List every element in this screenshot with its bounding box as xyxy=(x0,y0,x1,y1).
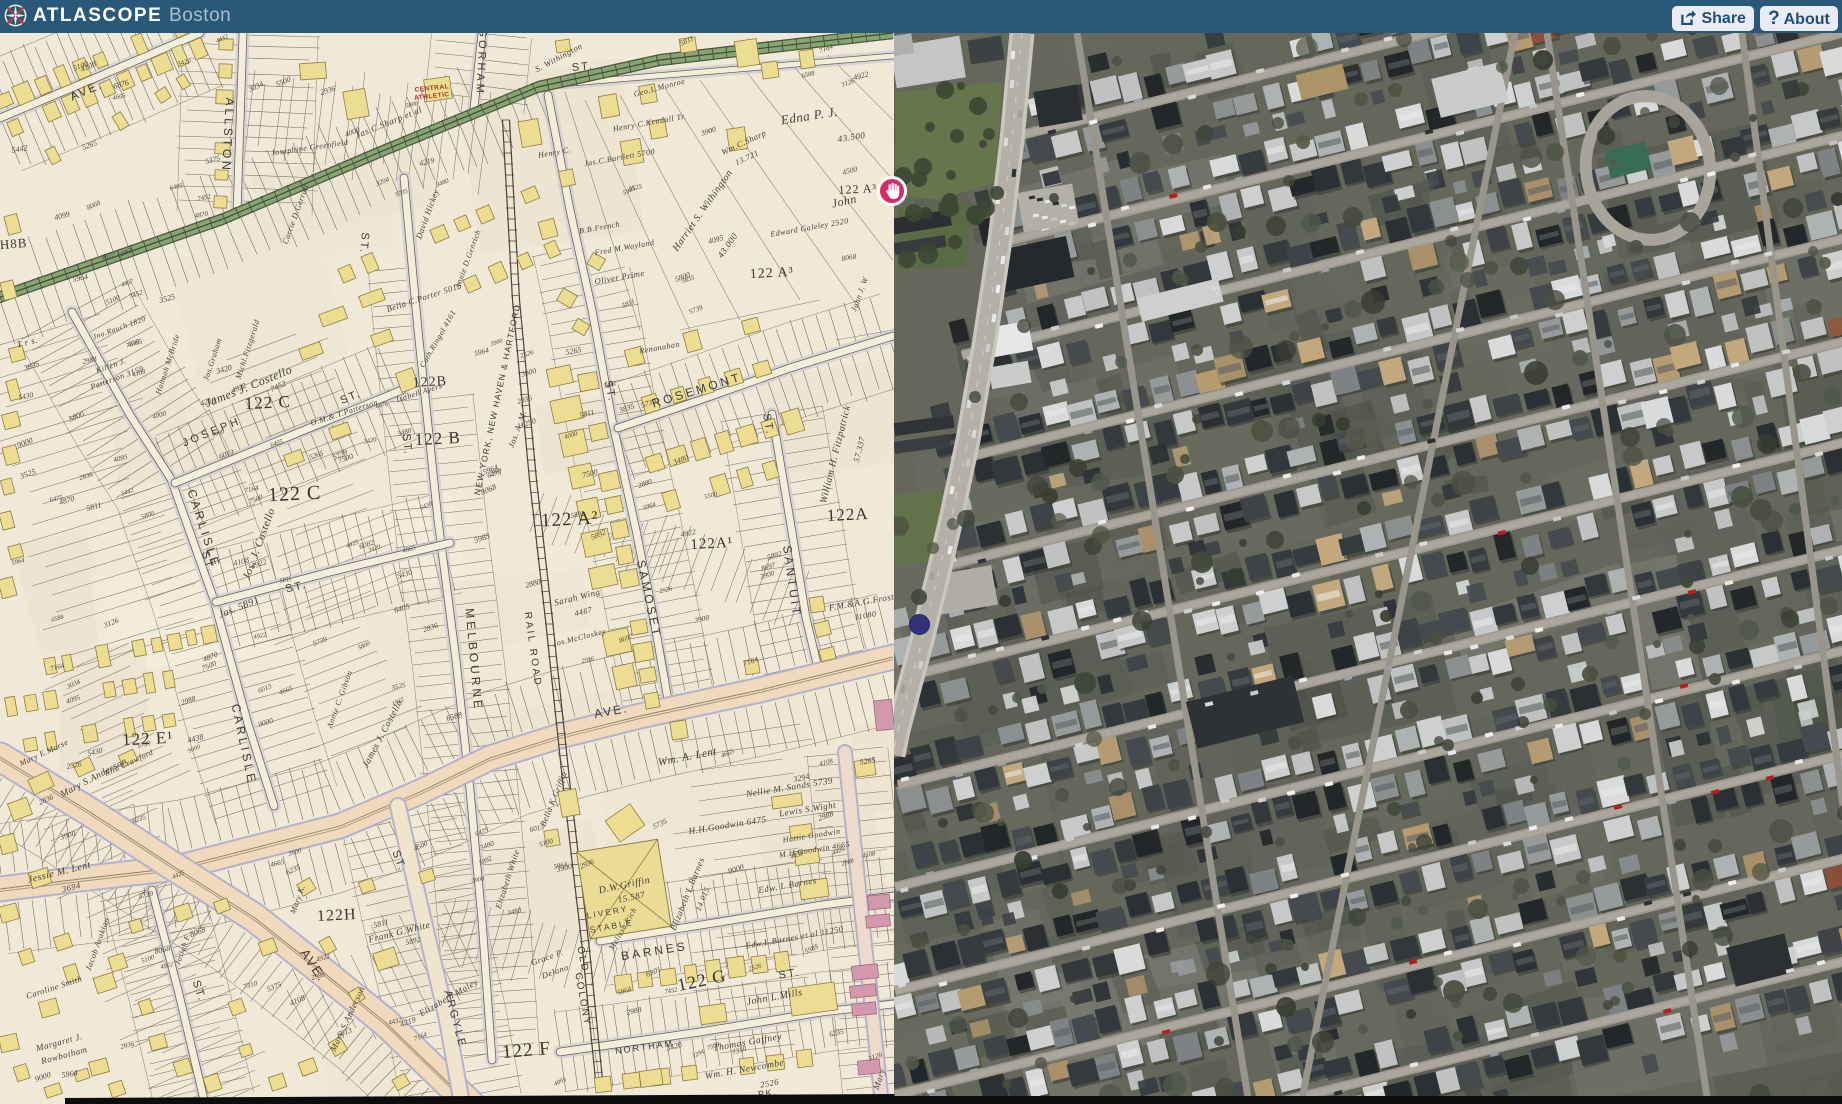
svg-text:122 A³: 122 A³ xyxy=(838,181,877,197)
svg-text:122B: 122B xyxy=(412,374,447,391)
svg-text:H8B: H8B xyxy=(0,235,28,252)
svg-text:122 A³: 122 A³ xyxy=(749,265,794,282)
svg-text:122 E¹: 122 E¹ xyxy=(122,728,174,750)
svg-text:ST.: ST. xyxy=(357,232,371,255)
svg-text:122 F: 122 F xyxy=(501,1038,551,1063)
svg-text:122A¹: 122A¹ xyxy=(690,535,734,553)
svg-text:ST.: ST. xyxy=(571,60,594,74)
svg-text:122 C: 122 C xyxy=(244,392,291,413)
svg-text:122 A²: 122 A² xyxy=(540,508,599,532)
svg-text:122A: 122A xyxy=(826,504,869,525)
svg-text:122 C: 122 C xyxy=(267,482,321,507)
svg-text:ST.: ST. xyxy=(400,433,414,456)
svg-text:122 B: 122 B xyxy=(414,428,461,449)
svg-text:122H: 122H xyxy=(317,906,357,925)
